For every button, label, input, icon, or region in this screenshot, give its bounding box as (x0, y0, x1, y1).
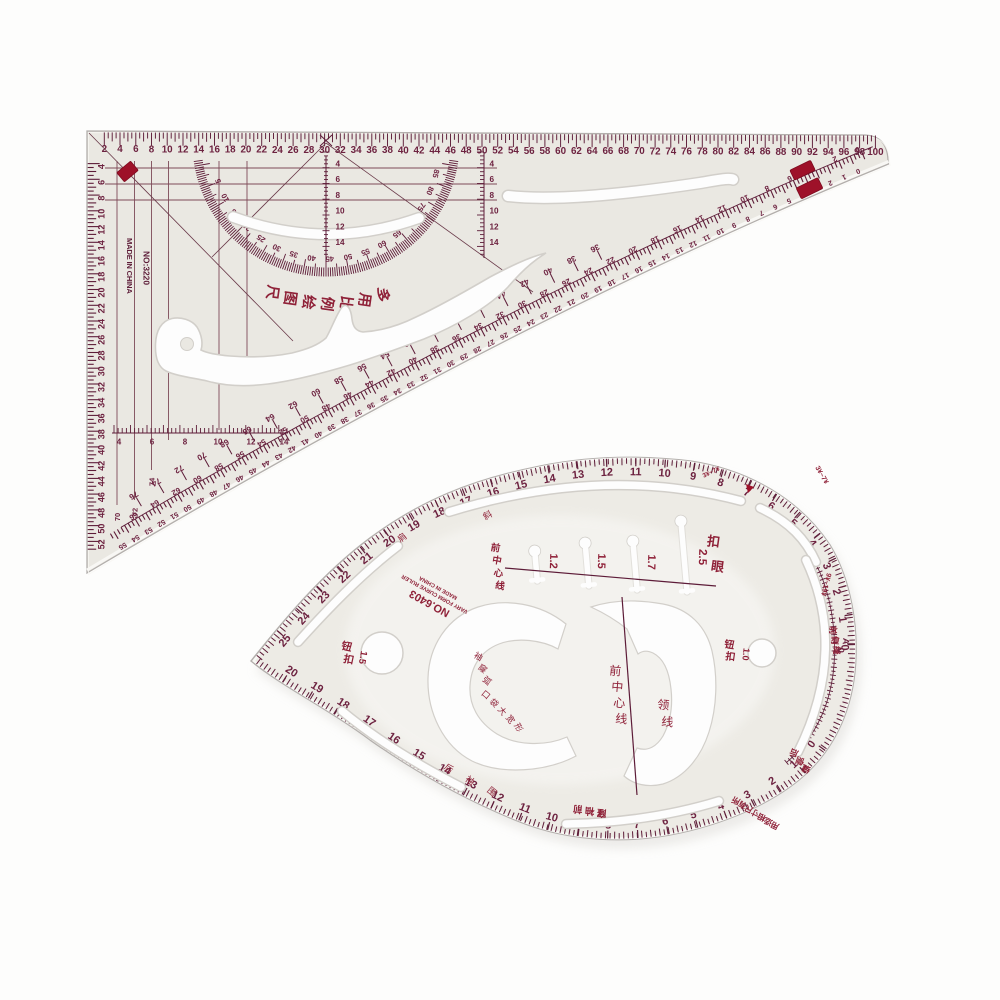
svg-text:24: 24 (272, 145, 283, 156)
svg-text:54: 54 (508, 146, 519, 157)
svg-text:前: 前 (828, 626, 839, 636)
svg-text:14: 14 (490, 238, 500, 247)
svg-text:11: 11 (630, 466, 642, 478)
svg-text:18: 18 (225, 145, 236, 156)
svg-text:44: 44 (429, 145, 440, 156)
svg-text:70: 70 (634, 146, 645, 157)
svg-text:48: 48 (461, 146, 472, 157)
svg-text:78: 78 (697, 147, 708, 158)
svg-text:34: 34 (351, 145, 362, 156)
svg-text:线: 线 (661, 715, 674, 730)
svg-text:20: 20 (97, 287, 107, 297)
svg-text:26: 26 (288, 145, 299, 156)
svg-text:10: 10 (97, 209, 107, 219)
svg-text:12: 12 (247, 438, 256, 447)
svg-text:12: 12 (490, 223, 500, 232)
svg-text:70: 70 (113, 513, 122, 521)
svg-text:10: 10 (658, 467, 671, 480)
svg-text:84: 84 (744, 147, 755, 158)
svg-text:侧: 侧 (830, 635, 841, 646)
svg-text:90: 90 (791, 147, 802, 158)
svg-text:2.5: 2.5 (696, 549, 709, 566)
svg-text:86: 86 (760, 147, 771, 158)
svg-text:例: 例 (318, 295, 338, 312)
svg-text:尺: 尺 (263, 284, 282, 301)
svg-text:50: 50 (477, 146, 488, 157)
svg-text:14: 14 (193, 144, 204, 155)
svg-text:36: 36 (97, 413, 107, 423)
svg-text:50: 50 (97, 524, 107, 534)
svg-text:14: 14 (336, 238, 346, 247)
svg-text:22: 22 (97, 303, 107, 313)
svg-text:52: 52 (97, 539, 107, 549)
svg-text:30: 30 (319, 145, 330, 156)
svg-text:34: 34 (97, 398, 107, 408)
svg-text:12: 12 (600, 467, 613, 480)
svg-text:50: 50 (343, 252, 353, 262)
svg-text:4: 4 (490, 160, 495, 169)
svg-text:10: 10 (336, 207, 346, 216)
svg-text:82: 82 (728, 147, 739, 158)
svg-text:窿: 窿 (596, 807, 607, 820)
svg-text:前: 前 (609, 663, 622, 679)
svg-text:中: 中 (611, 679, 624, 695)
svg-text:96: 96 (838, 147, 849, 158)
svg-text:62: 62 (571, 146, 582, 157)
svg-text:6: 6 (133, 144, 139, 155)
svg-text:0: 0 (836, 647, 846, 653)
svg-text:8: 8 (336, 191, 341, 200)
svg-text:领: 领 (657, 698, 670, 713)
svg-text:图: 图 (280, 290, 299, 307)
svg-text:42: 42 (414, 145, 425, 156)
svg-text:38: 38 (97, 429, 107, 439)
svg-text:46: 46 (97, 492, 107, 502)
svg-text:12: 12 (97, 225, 107, 235)
svg-text:心: 心 (613, 696, 626, 711)
svg-text:6: 6 (336, 175, 341, 184)
svg-text:38: 38 (382, 145, 393, 156)
svg-text:42: 42 (97, 461, 107, 471)
svg-text:NO:3220: NO:3220 (142, 251, 152, 285)
svg-text:40: 40 (398, 145, 409, 156)
svg-text:多: 多 (373, 286, 393, 303)
svg-text:1.7: 1.7 (645, 554, 658, 570)
svg-text:4: 4 (117, 144, 123, 155)
svg-text:4: 4 (117, 438, 122, 447)
svg-text:18: 18 (97, 272, 107, 282)
svg-text:8: 8 (149, 144, 155, 155)
svg-text:线: 线 (615, 712, 628, 727)
svg-text:58: 58 (539, 146, 550, 157)
svg-text:10: 10 (162, 144, 173, 155)
svg-text:6: 6 (150, 438, 155, 447)
svg-text:88: 88 (775, 147, 786, 158)
svg-text:56: 56 (524, 146, 535, 157)
svg-text:72: 72 (650, 146, 661, 157)
svg-text:36: 36 (366, 145, 377, 156)
svg-text:16: 16 (209, 145, 220, 156)
svg-text:扣: 扣 (706, 533, 721, 550)
svg-text:100: 100 (867, 147, 884, 158)
svg-text:22: 22 (256, 145, 267, 156)
svg-text:80: 80 (713, 147, 724, 158)
svg-text:48: 48 (97, 508, 107, 518)
svg-text:66: 66 (602, 146, 613, 157)
svg-text:68: 68 (618, 146, 629, 157)
svg-text:32: 32 (97, 382, 107, 392)
svg-text:46: 46 (445, 146, 456, 157)
svg-text:MADE IN CHINA: MADE IN CHINA (125, 238, 134, 294)
svg-text:74: 74 (665, 146, 676, 157)
svg-text:60: 60 (555, 146, 566, 157)
svg-text:1.0: 1.0 (740, 648, 751, 661)
svg-text:13: 13 (571, 468, 585, 481)
svg-text:30: 30 (97, 366, 107, 376)
svg-text:8: 8 (490, 191, 495, 200)
svg-text:12: 12 (336, 223, 346, 232)
svg-text:26: 26 (97, 335, 107, 345)
svg-text:前: 前 (572, 803, 583, 816)
svg-text:92: 92 (807, 147, 818, 158)
svg-text:8: 8 (183, 438, 188, 447)
svg-text:袖: 袖 (584, 805, 596, 818)
svg-text:16: 16 (97, 256, 107, 266)
svg-text:20: 20 (240, 145, 251, 156)
svg-text:52: 52 (492, 146, 503, 157)
svg-text:10: 10 (490, 207, 500, 216)
svg-text:44: 44 (97, 476, 107, 486)
svg-text:2: 2 (102, 144, 108, 155)
svg-text:绘: 绘 (299, 294, 319, 311)
svg-text:1.5: 1.5 (595, 553, 608, 569)
svg-text:64: 64 (587, 146, 598, 157)
svg-text:14: 14 (97, 240, 107, 250)
svg-text:40: 40 (97, 445, 107, 455)
svg-text:用: 用 (355, 292, 374, 309)
svg-text:1.2: 1.2 (547, 553, 560, 569)
svg-text:76: 76 (681, 146, 692, 157)
svg-text:28: 28 (97, 350, 107, 360)
svg-text:28: 28 (303, 145, 314, 156)
svg-text:24: 24 (97, 319, 107, 329)
svg-text:4: 4 (336, 160, 341, 169)
svg-text:6: 6 (490, 175, 495, 184)
svg-text:12: 12 (178, 144, 189, 155)
svg-text:40: 40 (307, 253, 317, 263)
